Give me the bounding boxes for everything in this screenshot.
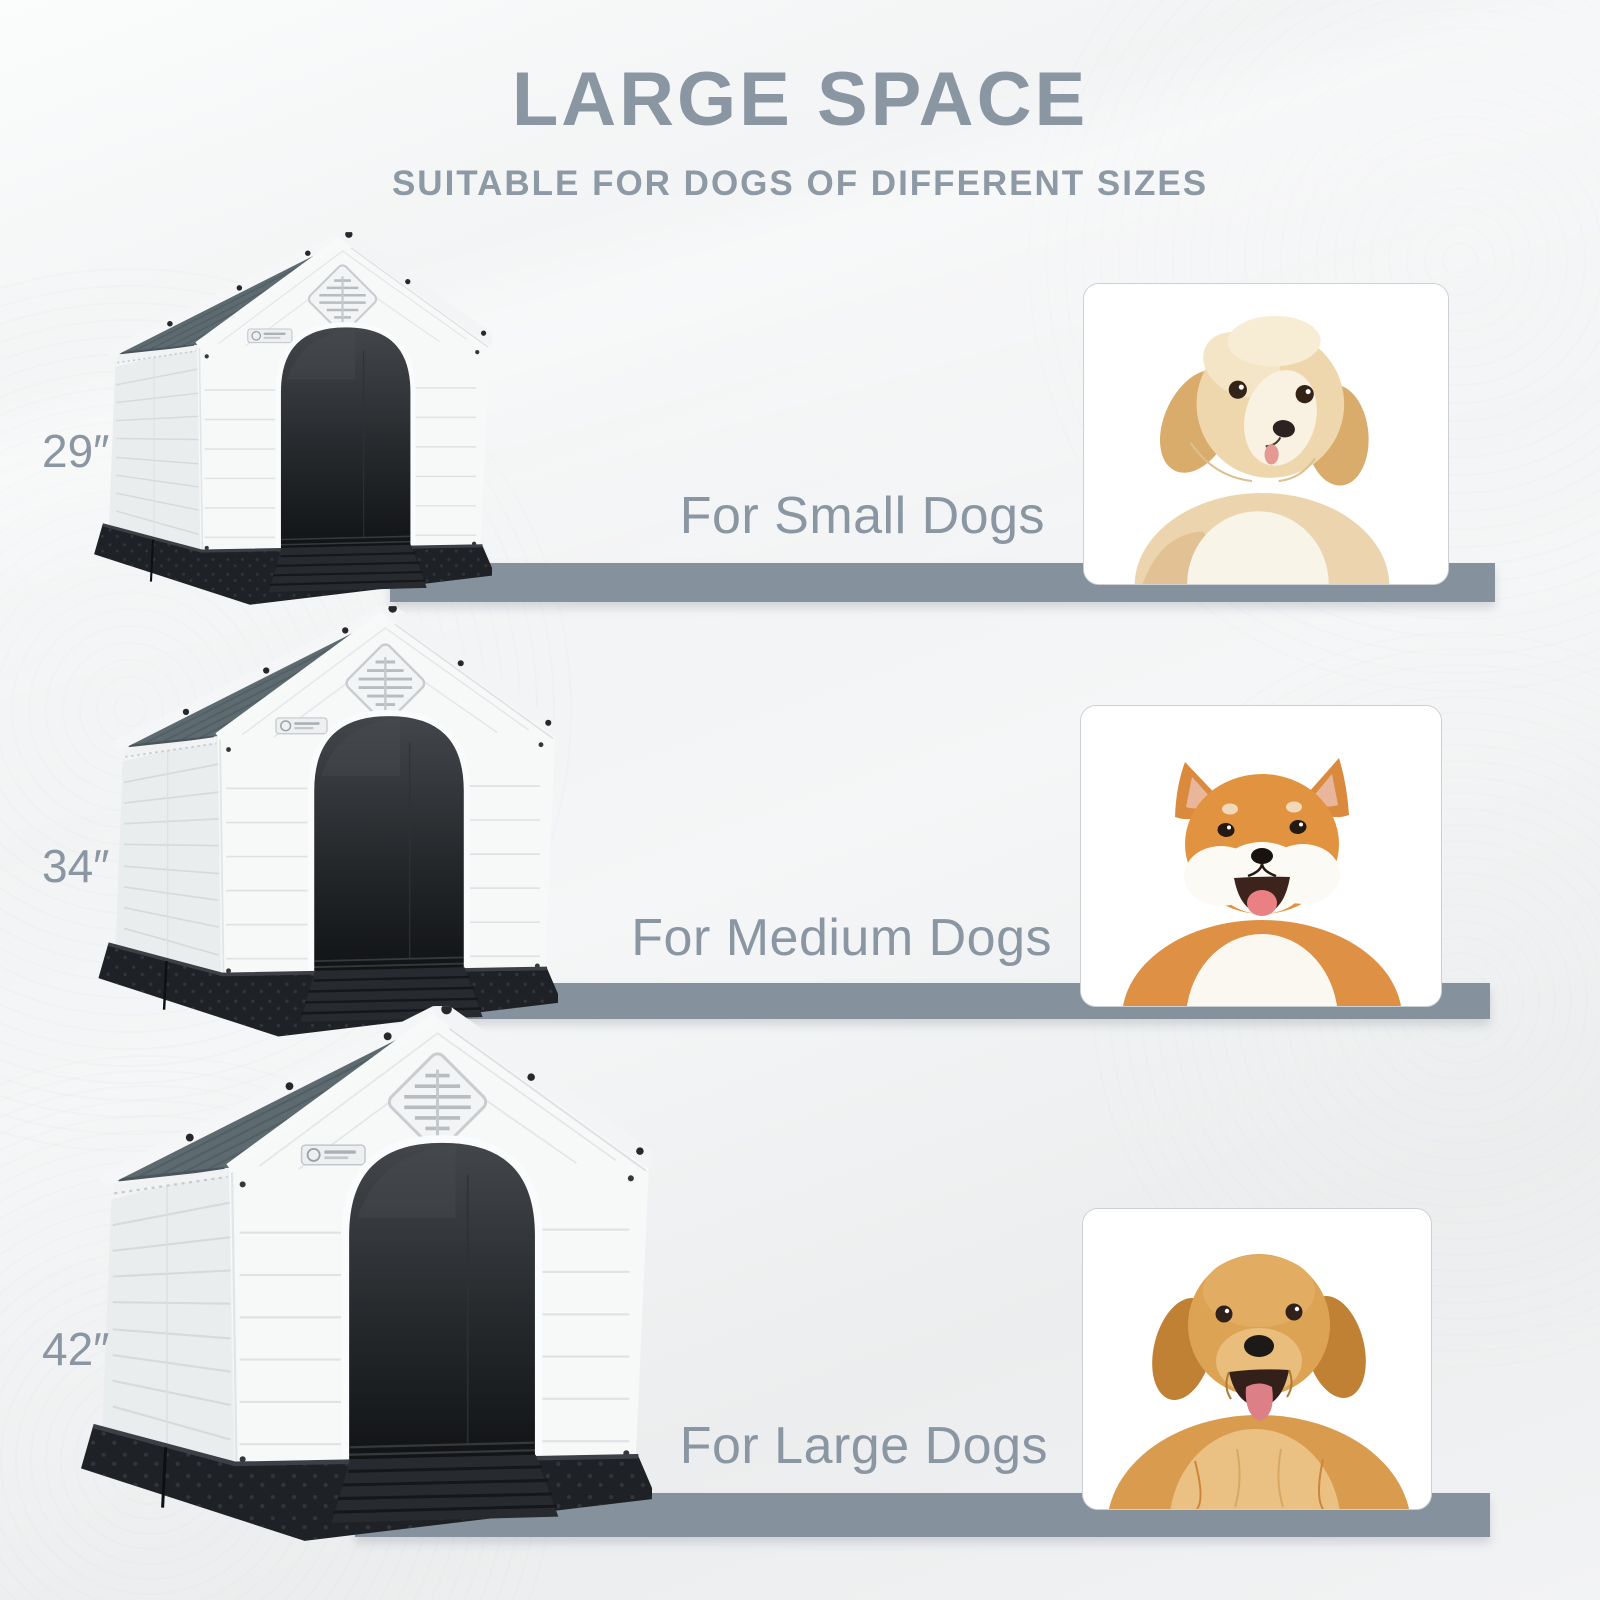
photo-card [1083,283,1449,585]
large-dog-photo [1083,1209,1431,1509]
page-subtitle: SUITABLE FOR DOGS OF DIFFERENT SIZES [0,164,1600,204]
dog-house-34-inch [96,606,558,1039]
size-label: 42″ [42,1322,109,1376]
size-label: 29″ [42,424,109,478]
product-infographic: LARGE SPACE SUITABLE FOR DOGS OF DIFFERE… [0,0,1600,1600]
dog-size-caption: For Medium Dogs [631,908,1052,968]
dog-head [1175,758,1349,916]
dog-size-caption: For Large Dogs [680,1416,1048,1476]
dog-house-42-inch [78,1006,652,1544]
dog-house-29-inch [92,232,492,607]
photo-card [1080,705,1442,1007]
photo-card [1082,1208,1432,1510]
dog-size-caption: For Small Dogs [680,486,1045,546]
size-label: 34″ [42,839,109,893]
medium-dog-photo [1081,706,1441,1006]
small-dog-photo [1084,284,1448,584]
page-title: LARGE SPACE [0,56,1600,143]
